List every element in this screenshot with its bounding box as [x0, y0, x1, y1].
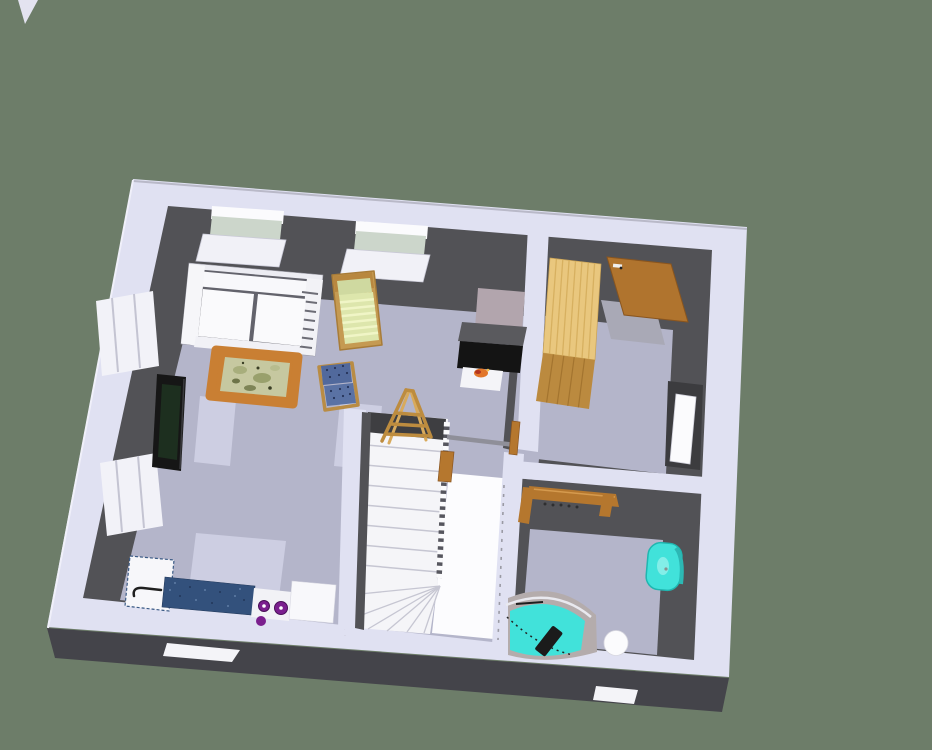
tv-screen [158, 384, 181, 460]
sink-highlight [657, 557, 669, 575]
3d-view-canvas[interactable] [0, 0, 932, 750]
open-white-door[interactable] [665, 381, 703, 470]
ladder-rung [396, 413, 421, 415]
window-sill [196, 234, 286, 267]
tv-cabinet[interactable] [152, 374, 186, 471]
light-pool-3 [194, 396, 236, 466]
ladder-rung [391, 424, 426, 426]
fire-spark [487, 369, 490, 372]
armchair-seat [324, 383, 356, 406]
sofa[interactable] [181, 263, 323, 357]
fire-core [475, 370, 481, 374]
newel-post-left [438, 451, 454, 482]
window-body [96, 291, 159, 376]
sofa-seat-right [253, 294, 306, 346]
counter-cabinet[interactable] [289, 581, 336, 623]
sink-drain [664, 567, 667, 570]
ladder-apex [406, 390, 413, 391]
coffee-table[interactable] [210, 350, 298, 404]
pedestal-sink[interactable] [645, 542, 683, 592]
toilet[interactable] [604, 631, 628, 656]
wardrobe-front [536, 353, 595, 409]
door-knob [620, 267, 623, 270]
window-west-upper[interactable] [96, 291, 159, 376]
ladder-rung [386, 434, 430, 436]
lounge-chair[interactable] [332, 271, 382, 350]
sofa-seat-left [198, 289, 254, 341]
blue-armchair[interactable] [319, 363, 358, 410]
